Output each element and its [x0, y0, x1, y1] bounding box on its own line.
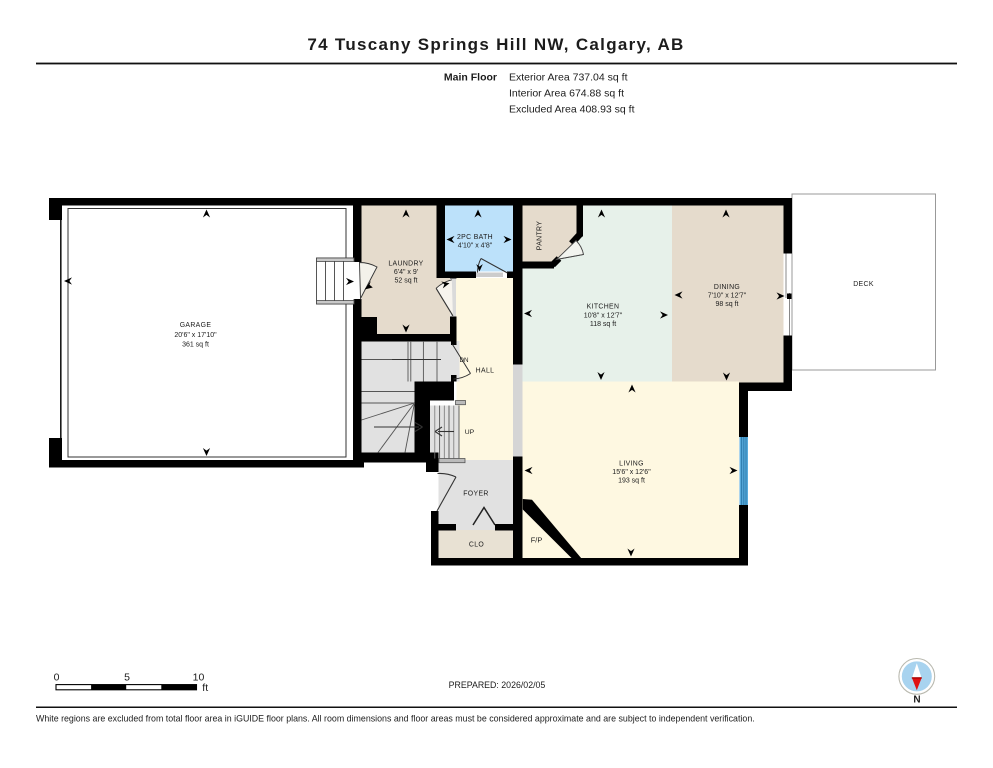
svg-text:Excluded Area 408.93 sq ft: Excluded Area 408.93 sq ft — [509, 104, 635, 116]
svg-text:7'10" x 12'7": 7'10" x 12'7" — [708, 293, 747, 300]
svg-text:PANTRY: PANTRY — [537, 221, 544, 250]
svg-text:0: 0 — [54, 672, 60, 684]
svg-text:KITCHEN: KITCHEN — [587, 304, 620, 311]
svg-text:LAUNDRY: LAUNDRY — [388, 261, 423, 268]
svg-text:10'8" x 12'7": 10'8" x 12'7" — [584, 313, 623, 320]
svg-text:98 sq ft: 98 sq ft — [716, 301, 739, 308]
svg-text:2PC BATH: 2PC BATH — [457, 234, 493, 241]
svg-text:4'10" x 4'8": 4'10" x 4'8" — [458, 243, 493, 250]
svg-text:52 sq ft: 52 sq ft — [395, 278, 418, 285]
svg-text:Exterior Area 737.04 sq ft: Exterior Area 737.04 sq ft — [509, 72, 628, 84]
svg-text:74 Tuscany Springs Hill NW, Ca: 74 Tuscany Springs Hill NW, Calgary, AB — [307, 35, 684, 54]
svg-text:20'6" x 17'10": 20'6" x 17'10" — [174, 332, 217, 339]
svg-text:FOYER: FOYER — [463, 491, 489, 498]
svg-text:Main Floor: Main Floor — [444, 72, 497, 84]
svg-text:PREPARED: 2026/02/05: PREPARED: 2026/02/05 — [449, 680, 546, 690]
svg-text:ft: ft — [202, 682, 208, 694]
svg-text:361 sq ft: 361 sq ft — [182, 342, 209, 349]
svg-text:F/P: F/P — [531, 536, 543, 545]
svg-text:15'6" x 12'6": 15'6" x 12'6" — [612, 469, 651, 476]
svg-text:5: 5 — [124, 672, 130, 684]
svg-text:DECK: DECK — [853, 281, 874, 288]
svg-text:118 sq ft: 118 sq ft — [590, 321, 616, 328]
svg-text:HALL: HALL — [476, 368, 495, 375]
svg-text:CLO: CLO — [469, 542, 485, 549]
svg-text:GARAGE: GARAGE — [180, 322, 212, 329]
svg-text:DINING: DINING — [714, 284, 740, 291]
svg-text:White regions are excluded fro: White regions are excluded from total fl… — [36, 714, 755, 724]
svg-text:Interior Area 674.88 sq ft: Interior Area 674.88 sq ft — [509, 88, 624, 100]
svg-text:DN: DN — [459, 357, 469, 364]
svg-text:193 sq ft: 193 sq ft — [618, 478, 645, 485]
svg-text:LIVING: LIVING — [619, 461, 644, 468]
svg-text:6'4" x 9': 6'4" x 9' — [394, 269, 418, 276]
svg-text:N: N — [913, 695, 920, 706]
svg-text:UP: UP — [465, 429, 475, 436]
